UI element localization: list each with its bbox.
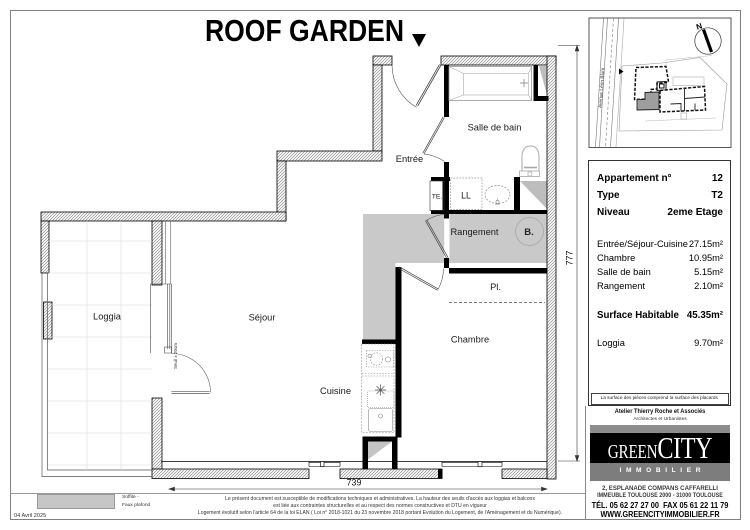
svg-text:B.: B. — [524, 227, 534, 238]
svg-text:Entrée: Entrée — [396, 154, 423, 164]
svg-text:Chambre: Chambre — [451, 335, 489, 345]
svg-text:Cuisine: Cuisine — [320, 386, 351, 396]
svg-text:Seuil ± 20cm: Seuil ± 20cm — [173, 343, 178, 369]
svg-text:Pl.: Pl. — [490, 282, 501, 292]
svg-text:777: 777 — [565, 251, 575, 266]
svg-text:Salle de bain: Salle de bain — [468, 123, 522, 133]
svg-text:Loggia: Loggia — [93, 312, 122, 322]
svg-text:LL: LL — [461, 191, 471, 201]
svg-text:TE.: TE. — [432, 194, 443, 201]
svg-text:Rangement: Rangement — [450, 227, 498, 237]
svg-text:739: 739 — [347, 478, 362, 488]
svg-text:Séjour: Séjour — [249, 313, 276, 323]
